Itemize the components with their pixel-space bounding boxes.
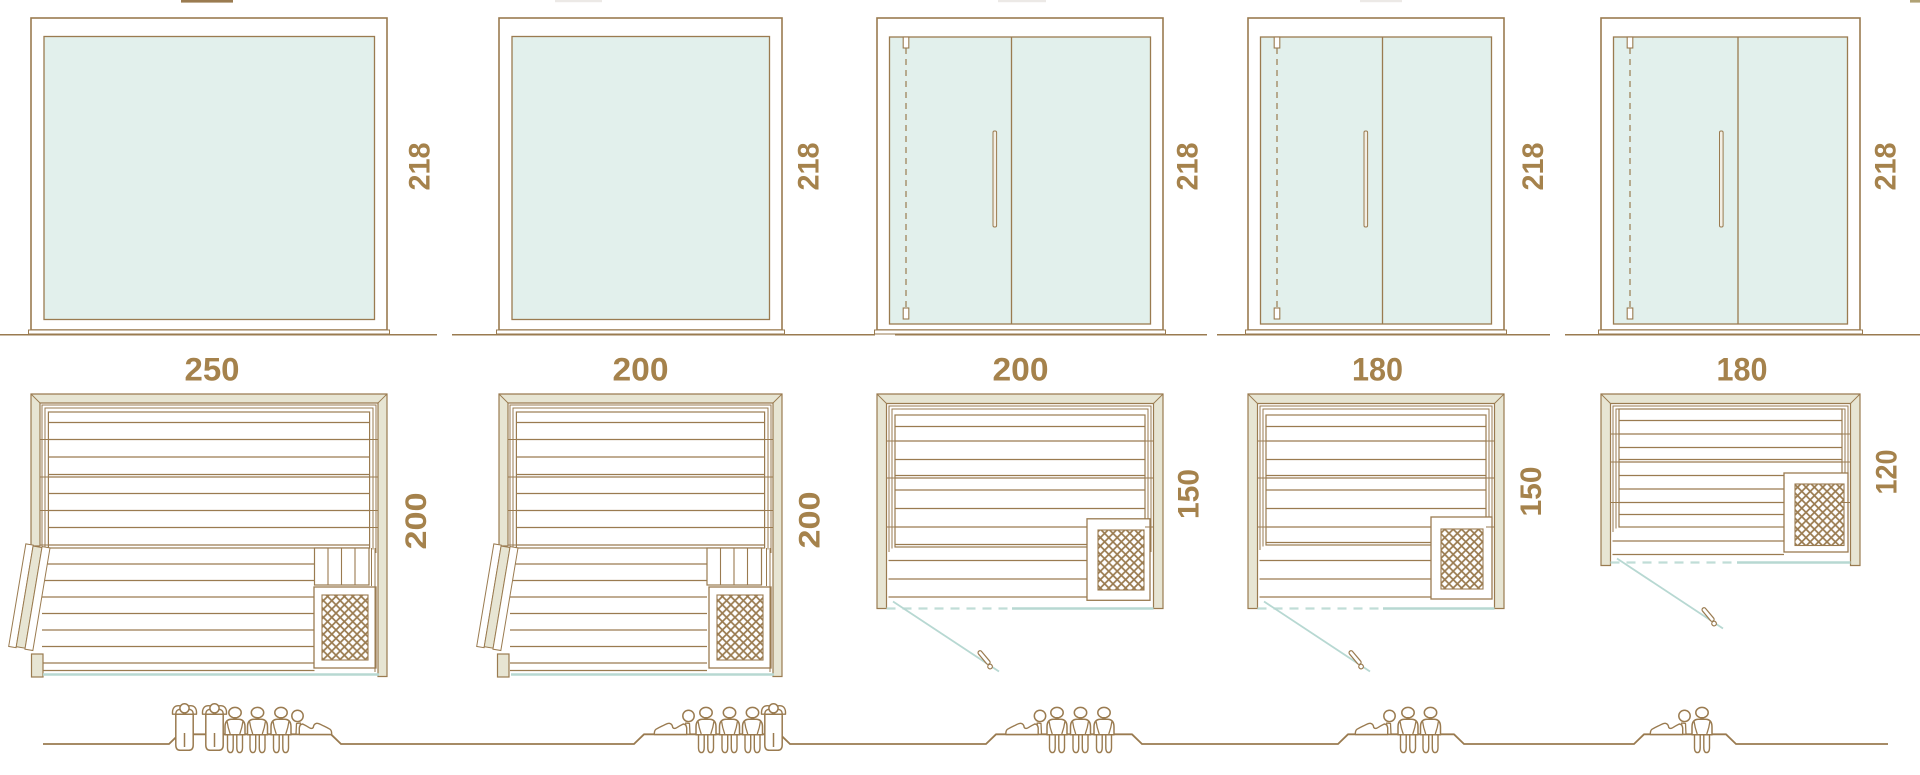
svg-text:218: 218 (404, 143, 437, 191)
svg-text:180: 180 (1352, 352, 1403, 388)
svg-text:150: 150 (1173, 469, 1206, 519)
svg-text:218: 218 (793, 143, 826, 191)
svg-text:150: 150 (1515, 467, 1548, 517)
svg-text:250: 250 (185, 352, 240, 388)
svg-text:180: 180 (1717, 352, 1768, 388)
svg-text:120: 120 (1871, 450, 1904, 495)
svg-text:200: 200 (400, 493, 433, 550)
svg-text:218: 218 (1172, 143, 1205, 191)
svg-text:200: 200 (794, 492, 827, 549)
svg-text:200: 200 (613, 352, 669, 388)
svg-text:218: 218 (1517, 143, 1550, 191)
svg-text:200: 200 (993, 352, 1049, 388)
svg-text:218: 218 (1870, 143, 1903, 191)
